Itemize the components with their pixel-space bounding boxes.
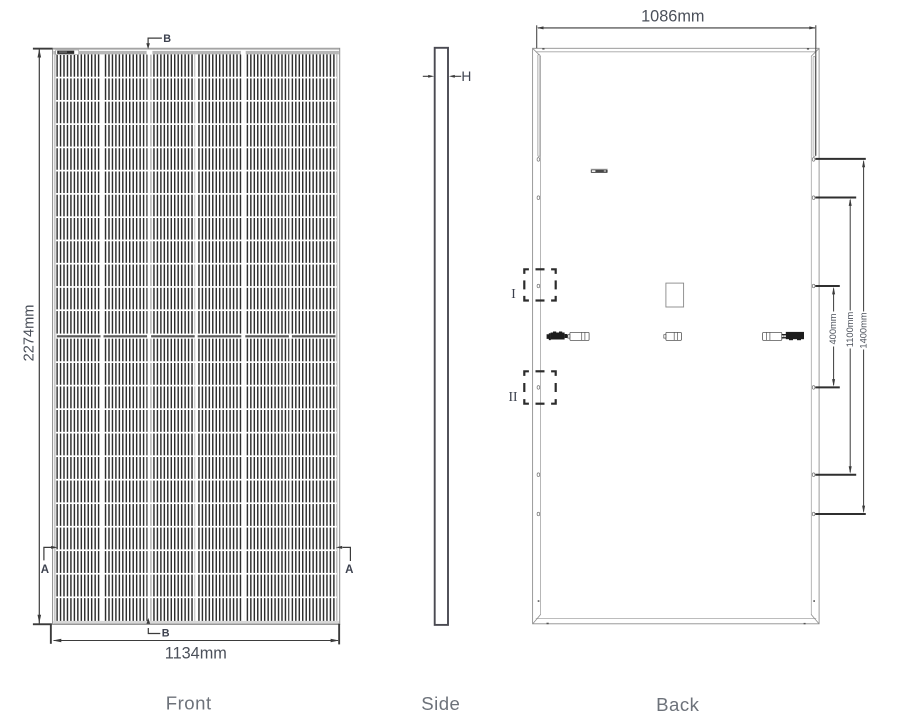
svg-text:Back: Back [656,694,700,715]
svg-text:1086mm: 1086mm [641,7,704,25]
svg-text:400mm: 400mm [828,313,838,344]
svg-text:1134mm: 1134mm [165,645,227,663]
svg-text:2274mm: 2274mm [21,305,37,362]
svg-text:Front: Front [166,693,212,714]
svg-text:B: B [163,33,171,45]
svg-text:Side: Side [421,693,460,714]
svg-text:B: B [162,628,170,640]
svg-text:H: H [461,69,471,84]
svg-text:A: A [41,564,49,576]
svg-text:I: I [511,286,516,301]
svg-text:II: II [509,389,518,404]
svg-text:1100mm: 1100mm [845,312,855,348]
svg-text:1400mm: 1400mm [858,312,868,348]
svg-text:A: A [345,564,353,576]
